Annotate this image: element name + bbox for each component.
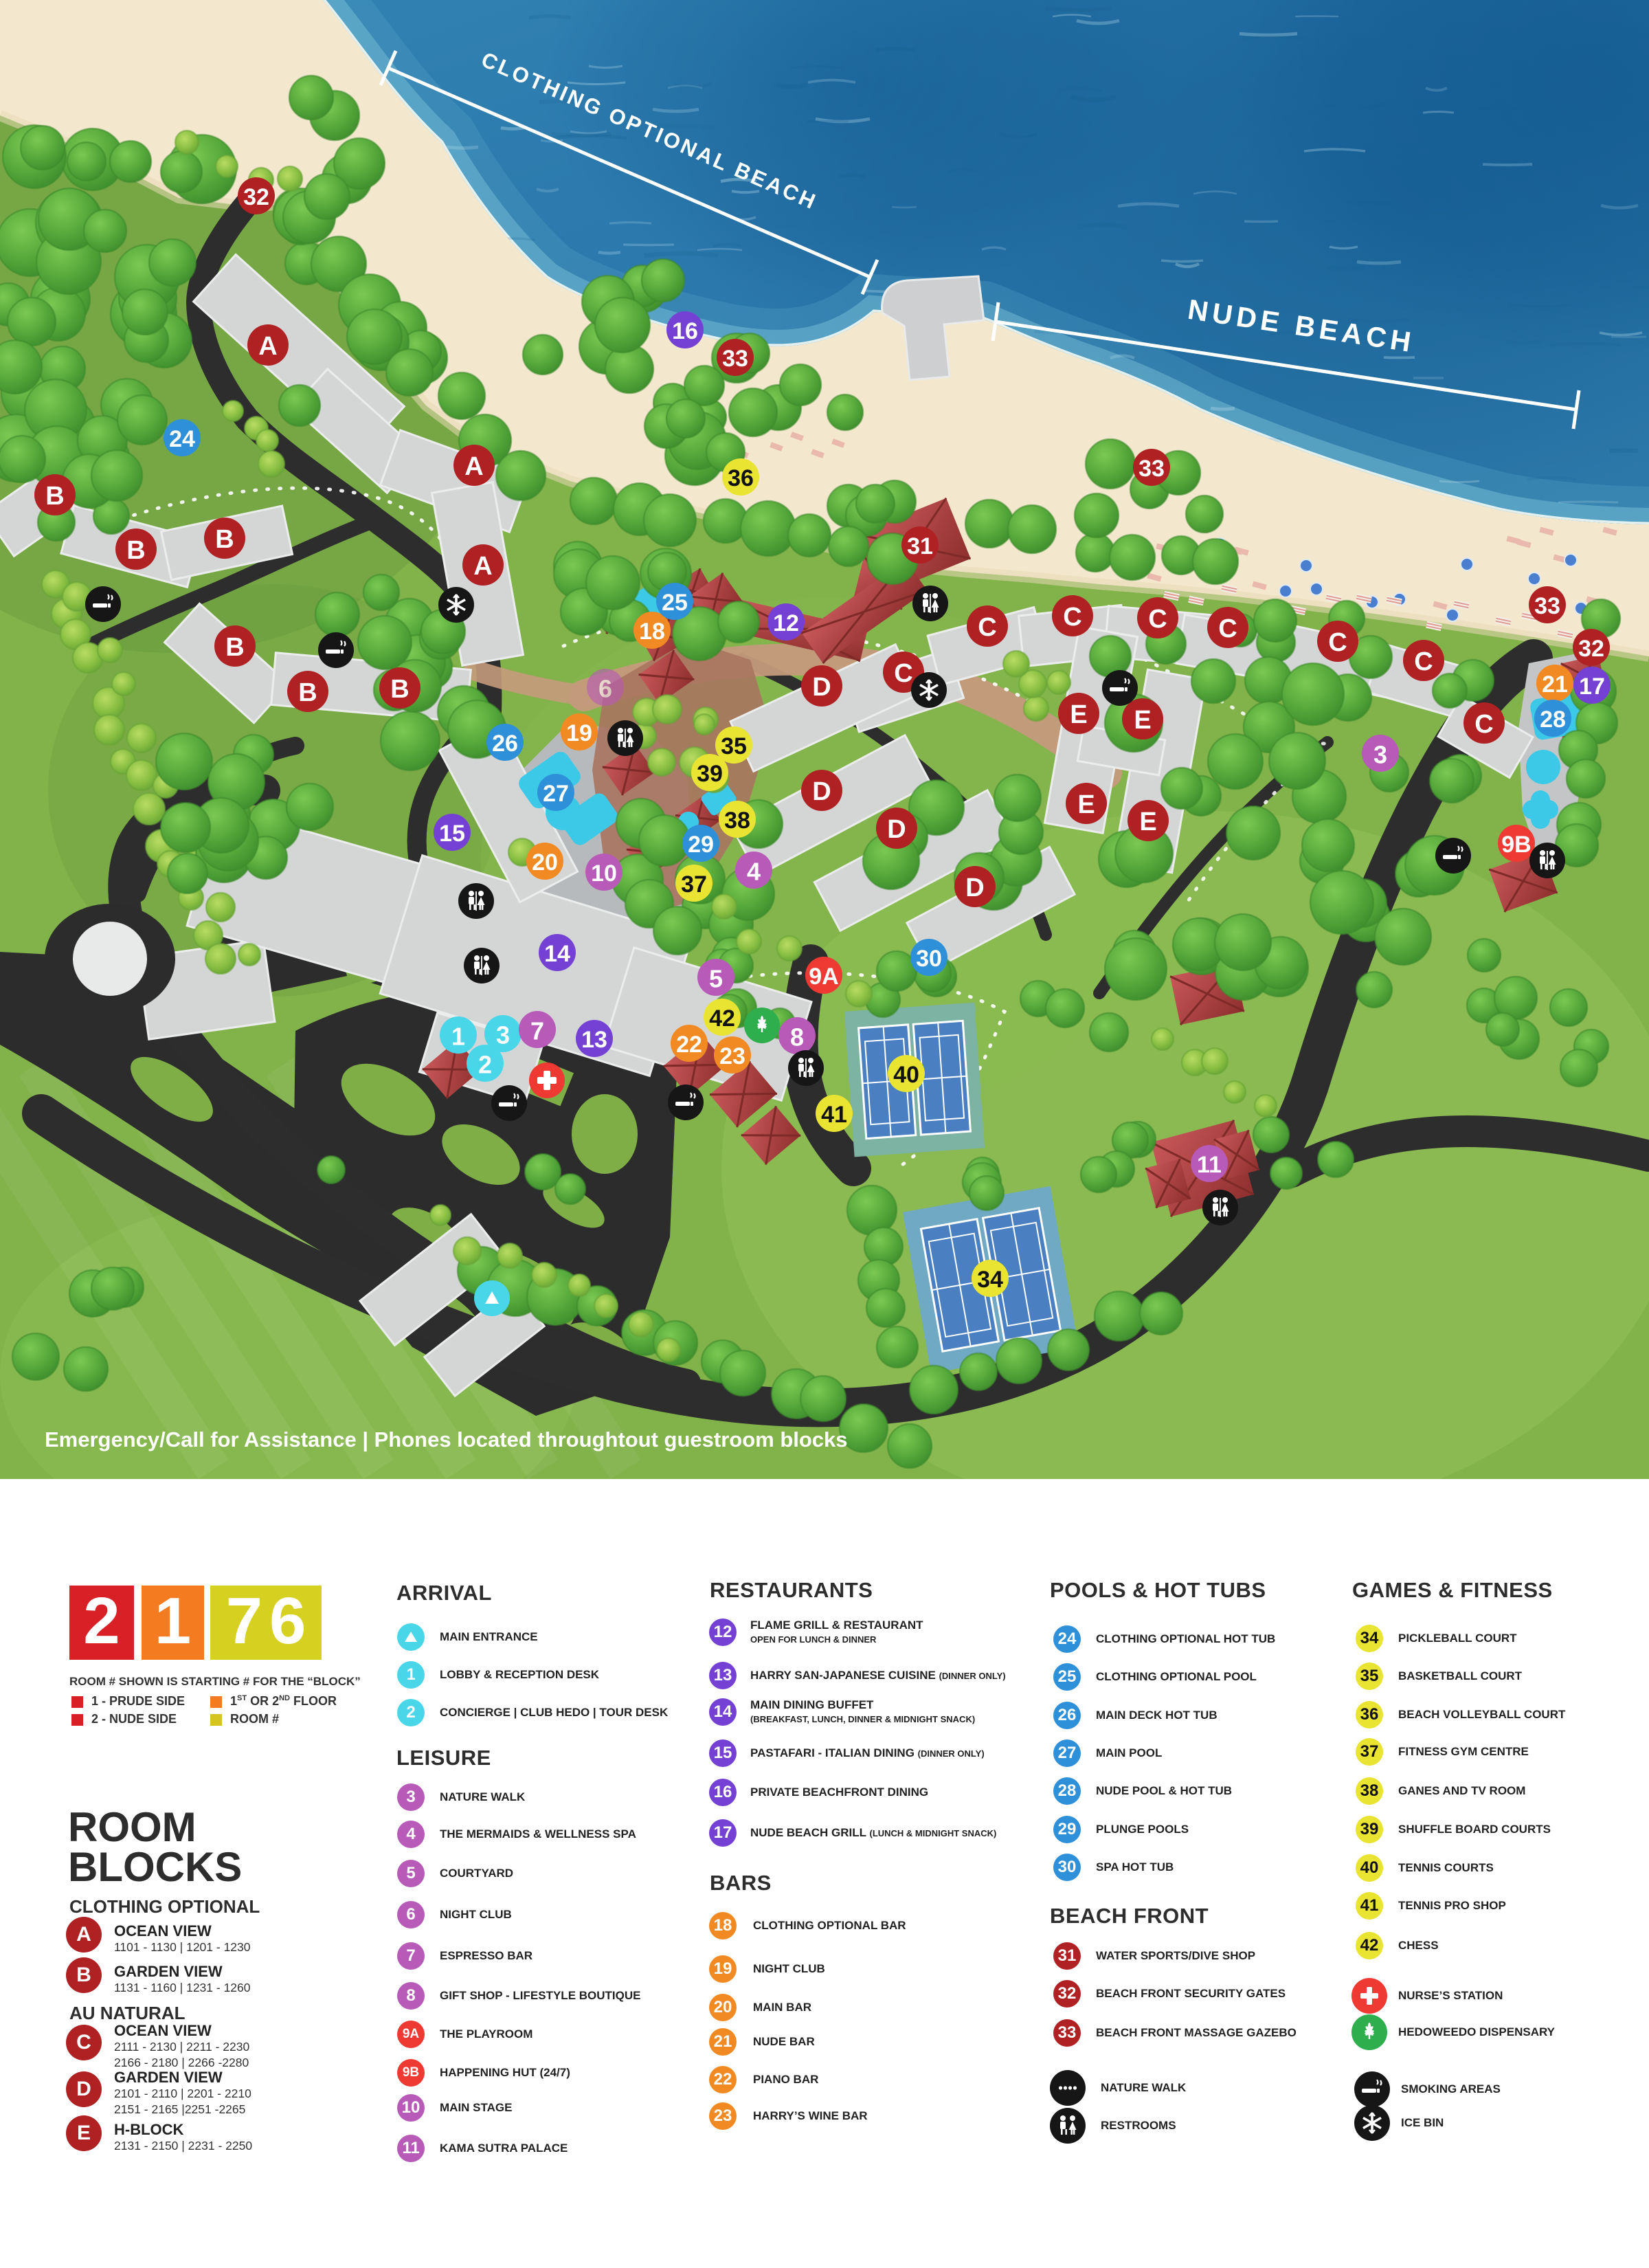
svg-text:Emergency/Call for Assistance: Emergency/Call for Assistance | Phones l… <box>45 1427 848 1452</box>
svg-text:13: 13 <box>581 1027 607 1053</box>
svg-text:28: 28 <box>1540 707 1566 733</box>
svg-text:7: 7 <box>530 1017 544 1045</box>
svg-text:38: 38 <box>724 808 750 834</box>
svg-text:10: 10 <box>591 860 617 887</box>
svg-text:C: C <box>894 659 912 688</box>
svg-text:E: E <box>1070 700 1087 729</box>
svg-text:E: E <box>1139 808 1156 836</box>
svg-text:8: 8 <box>790 1023 804 1052</box>
svg-text:4: 4 <box>747 858 761 886</box>
svg-text:36: 36 <box>728 465 754 491</box>
svg-text:27: 27 <box>543 781 569 807</box>
svg-text:29: 29 <box>688 832 714 858</box>
svg-text:C: C <box>1148 605 1167 634</box>
svg-text:31: 31 <box>907 533 933 559</box>
svg-text:C: C <box>1474 710 1493 739</box>
svg-text:37: 37 <box>681 871 707 898</box>
svg-text:16: 16 <box>672 318 698 344</box>
svg-text:B: B <box>45 482 64 511</box>
svg-text:E: E <box>1077 790 1095 819</box>
svg-text:33: 33 <box>722 346 748 372</box>
svg-text:26: 26 <box>492 731 518 757</box>
svg-text:6: 6 <box>598 675 612 703</box>
svg-text:20: 20 <box>532 849 558 876</box>
svg-text:24: 24 <box>169 426 195 452</box>
svg-text:D: D <box>965 874 984 902</box>
svg-text:39: 39 <box>697 761 723 787</box>
svg-text:25: 25 <box>662 590 688 616</box>
svg-text:D: D <box>812 777 831 806</box>
svg-text:18: 18 <box>639 619 665 645</box>
svg-text:35: 35 <box>721 733 747 759</box>
svg-text:11: 11 <box>1197 1152 1222 1178</box>
svg-text:C: C <box>1414 647 1433 676</box>
svg-text:3: 3 <box>1373 741 1387 769</box>
svg-text:41: 41 <box>821 1102 847 1128</box>
svg-text:C: C <box>1063 603 1081 632</box>
svg-text:B: B <box>215 525 234 554</box>
svg-text:D: D <box>812 673 831 702</box>
svg-text:C: C <box>978 613 996 642</box>
svg-text:1: 1 <box>451 1023 465 1051</box>
svg-text:C: C <box>1328 628 1347 657</box>
svg-text:B: B <box>126 536 145 565</box>
svg-text:40: 40 <box>893 1062 919 1088</box>
svg-text:A: A <box>473 552 492 581</box>
svg-text:B: B <box>298 678 317 707</box>
svg-text:B: B <box>390 675 409 704</box>
svg-text:12: 12 <box>773 610 799 636</box>
svg-text:9B: 9B <box>1501 832 1531 858</box>
svg-text:34: 34 <box>977 1267 1003 1293</box>
svg-text:E: E <box>1134 706 1151 735</box>
svg-text:21: 21 <box>1542 671 1568 698</box>
svg-text:30: 30 <box>916 946 942 972</box>
svg-text:17: 17 <box>1579 674 1605 700</box>
svg-text:5: 5 <box>709 965 723 993</box>
svg-text:19: 19 <box>566 720 592 746</box>
svg-text:B: B <box>225 633 244 662</box>
svg-text:32: 32 <box>1578 636 1604 662</box>
svg-text:C: C <box>1218 614 1237 643</box>
svg-text:A: A <box>464 452 483 481</box>
svg-text:3: 3 <box>496 1021 510 1049</box>
svg-text:33: 33 <box>1534 593 1560 619</box>
svg-text:33: 33 <box>1138 456 1165 482</box>
svg-text:15: 15 <box>439 821 465 847</box>
svg-text:42: 42 <box>709 1005 735 1032</box>
svg-text:A: A <box>258 332 277 361</box>
svg-text:23: 23 <box>719 1043 745 1069</box>
svg-text:22: 22 <box>676 1032 702 1058</box>
svg-text:9A: 9A <box>809 964 838 990</box>
svg-text:D: D <box>887 815 906 844</box>
svg-text:14: 14 <box>544 941 570 967</box>
svg-text:32: 32 <box>243 184 269 210</box>
svg-text:2: 2 <box>478 1051 492 1079</box>
